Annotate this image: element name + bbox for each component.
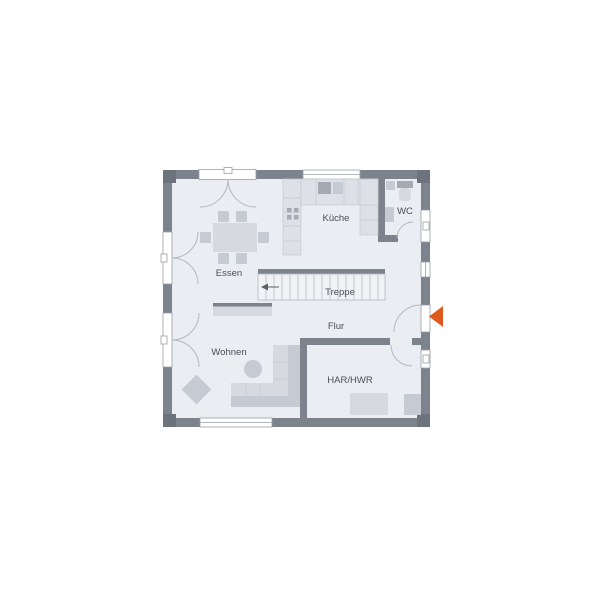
kitchen-appliance xyxy=(333,182,343,194)
corner-bottom-right xyxy=(417,414,430,427)
burner-icon xyxy=(294,215,299,220)
french-door-top-knob xyxy=(224,168,232,174)
wall-har-top xyxy=(300,338,390,345)
room-label-wc: WC xyxy=(397,206,413,217)
wc-shelf xyxy=(386,181,395,190)
room-label-essen: Essen xyxy=(216,268,242,279)
har-appliances xyxy=(350,393,421,415)
floor-plan-page: Essen Küche WC Treppe Flur Wohnen HAR/HW… xyxy=(0,0,600,600)
toilet-tank xyxy=(397,181,413,188)
toilet-bowl xyxy=(399,188,411,201)
room-label-treppe: Treppe xyxy=(325,287,355,298)
corner-top-right xyxy=(417,170,430,183)
wall-right xyxy=(421,170,430,427)
sideboard xyxy=(213,307,272,317)
dining-chair xyxy=(200,232,211,243)
dining-chair xyxy=(236,211,247,222)
floor-plan: Essen Küche WC Treppe Flur Wohnen HAR/HW… xyxy=(0,0,600,600)
wc-window-marker xyxy=(423,222,429,230)
room-label-flur: Flur xyxy=(328,321,344,332)
coffee-table xyxy=(244,360,262,378)
room-label-kueche: Küche xyxy=(323,213,350,224)
kitchen-counter-right xyxy=(360,179,378,235)
entrance-door xyxy=(421,305,430,332)
corner-bottom-left xyxy=(163,414,176,427)
burner-icon xyxy=(287,215,292,220)
kitchen-sink xyxy=(318,182,331,194)
sofa-back-horizontal xyxy=(231,396,300,407)
dining-chair xyxy=(258,232,269,243)
burner-icon xyxy=(287,208,292,213)
wall-har-left xyxy=(300,338,307,418)
sofa-seats-vertical xyxy=(273,345,288,396)
dining-chair xyxy=(218,211,229,222)
wall-har-top-stub xyxy=(412,338,421,345)
french-door-wohnen-knob xyxy=(161,336,167,344)
dining-table xyxy=(213,223,257,252)
wall-left xyxy=(163,170,172,427)
wc-sink xyxy=(385,207,394,222)
stair-rail-wall xyxy=(258,269,385,274)
har-appliance-small xyxy=(404,394,421,415)
french-door-essen-knob xyxy=(161,254,167,262)
entrance-arrow xyxy=(429,306,443,327)
half-wall-edge xyxy=(213,303,272,307)
staircase xyxy=(258,274,385,300)
dining-chair xyxy=(218,253,229,264)
wall-kitchen-wc xyxy=(378,179,385,242)
har-appliance-large xyxy=(350,393,388,415)
burner-icon xyxy=(294,208,299,213)
sofa-seats-horizontal xyxy=(231,383,273,396)
wall-wc-bottom xyxy=(378,235,398,242)
dining-chair xyxy=(236,253,247,264)
har-window-marker xyxy=(423,355,429,363)
room-label-wohnen: Wohnen xyxy=(211,347,246,358)
room-label-har-hwr: HAR/HWR xyxy=(327,375,373,386)
corner-top-left xyxy=(163,170,176,183)
